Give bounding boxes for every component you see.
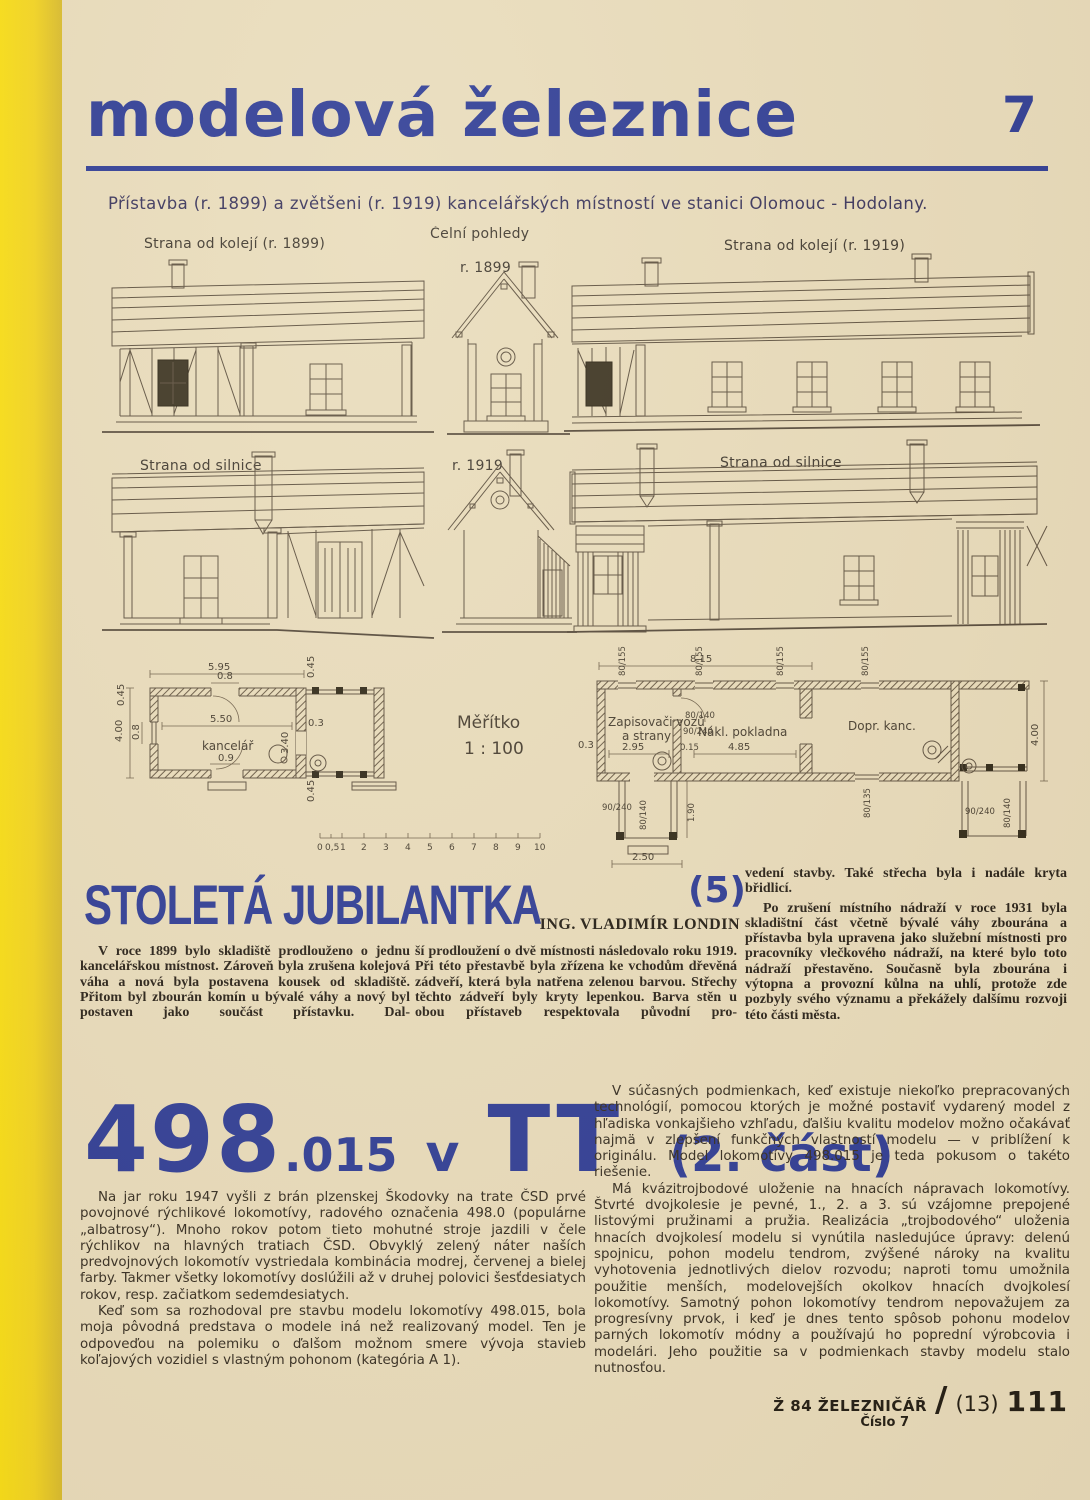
svg-text:0.3: 0.3 [308,718,324,729]
footer-slash: / [935,1380,947,1420]
svg-text:2.50: 2.50 [632,852,654,863]
elevation-front-1899 [447,262,570,434]
elevation-road-1899 [102,452,434,638]
svg-text:3.40: 3.40 [280,732,291,754]
label-front-1899: r. 1899 [460,260,511,276]
room-label-dopr-kanc: Dopr. kanc. [848,719,916,733]
label-front-1919: r. 1919 [452,458,503,474]
page-number-bottom: 111 [1007,1385,1068,1418]
svg-text:5.50: 5.50 [210,714,232,725]
svg-text:80/155: 80/155 [618,646,628,676]
elevation-track-1899 [102,260,434,432]
label-front-views: Čelní pohledy [430,226,529,242]
article1-column1: V roce 1899 bylo skladiště prodlouženo o… [80,944,410,1024]
floor-plan-1899: kancelář 5.95 0.8 0.45 0.45 4.00 0.8 5.5… [114,656,396,802]
svg-text:2.95: 2.95 [622,742,644,753]
svg-text:4.00: 4.00 [114,720,125,742]
magazine-title: modelová železnice [86,78,798,151]
scale-bar: 0 0,5 1 2 3 4 5 6 7 8 9 10 [317,833,546,853]
svg-text:a strany: a strany [622,729,671,743]
svg-text:6: 6 [449,843,455,853]
svg-text:80/140: 80/140 [1003,798,1013,828]
floor-plan-1919: Zapisovači vozů a strany Nákl. pokladna … [578,646,1048,868]
scale-ratio: 1 : 100 [464,739,524,759]
drawing-caption: Přístavba (r. 1899) a zvětšeni (r. 1919)… [108,194,988,213]
svg-text:80/155: 80/155 [861,646,871,676]
header-rule [86,166,1048,171]
svg-text:90/240: 90/240 [602,803,632,813]
article1-part-number: (5) [688,870,746,911]
svg-text:5: 5 [427,843,433,853]
svg-text:0.8: 0.8 [217,671,233,682]
article1-column3: vedení stavby. Také střecha byla i nadál… [745,866,1067,1027]
svg-text:8: 8 [493,843,499,853]
svg-text:0,5: 0,5 [325,843,339,853]
page-footer: Ž 84 ŽELEZNIČÁŘ Číslo 7 / (13) 111 [756,1380,1068,1430]
svg-text:0.45: 0.45 [116,684,127,706]
article2-title-number: 498 [84,1086,282,1193]
svg-text:0: 0 [317,843,323,853]
svg-text:4.85: 4.85 [728,742,750,753]
svg-text:1.90: 1.90 [687,803,697,822]
imprint: Ž 84 ŽELEZNIČÁŘ Číslo 7 [773,1397,927,1430]
label-road-1919: Strana od silnice [720,455,842,471]
svg-text:80/140: 80/140 [639,800,649,830]
article1-column2: ší prodloužení o dvě místnosti následova… [415,944,737,1024]
svg-text:2: 2 [361,843,367,853]
article2-left-column: Na jar roku 1947 vyšli z brán plzenskej … [80,1190,586,1369]
article2-right-column: V súčasných podmienkach, keď existuje ni… [594,1084,1070,1377]
svg-text:0.3: 0.3 [578,740,594,751]
room-label-kancelar: kancelář [202,739,254,753]
svg-text:80/135: 80/135 [863,788,873,818]
svg-text:10: 10 [534,843,546,853]
svg-text:0.15: 0.15 [680,743,699,753]
elevation-front-1919 [442,450,577,632]
svg-text:90/240: 90/240 [683,727,713,737]
svg-text:9: 9 [515,843,521,853]
footer-series: (13) [955,1392,998,1416]
yellow-margin-strip [0,0,62,1500]
svg-text:90/240: 90/240 [965,807,995,817]
page-number-top: 7 [1002,86,1037,144]
article1-author: ING. VLADIMÍR LONDIN [455,916,740,934]
elevation-track-1919 [564,254,1040,431]
label-track-1919: Strana od kolejí (r. 1919) [724,238,905,254]
technical-drawings: Strana od kolejí (r. 1899) Čelní pohledy… [72,226,1077,868]
svg-text:1: 1 [340,843,346,853]
magazine-page: modelová železnice 7 Přístavba (r. 1899)… [0,0,1090,1500]
svg-text:0.45: 0.45 [306,780,317,802]
svg-text:4.00: 4.00 [1030,724,1041,746]
svg-text:7: 7 [471,843,477,853]
svg-text:80/155: 80/155 [695,646,705,676]
svg-text:0.45: 0.45 [306,656,317,678]
svg-text:0.8: 0.8 [131,724,142,740]
svg-text:0.9: 0.9 [218,753,234,764]
scale-title: Měřítko [457,713,520,733]
svg-text:3: 3 [383,843,389,853]
label-track-1899: Strana od kolejí (r. 1899) [144,236,325,252]
svg-text:4: 4 [405,843,411,853]
svg-text:80/155: 80/155 [776,646,786,676]
svg-text:80/140: 80/140 [685,711,715,721]
